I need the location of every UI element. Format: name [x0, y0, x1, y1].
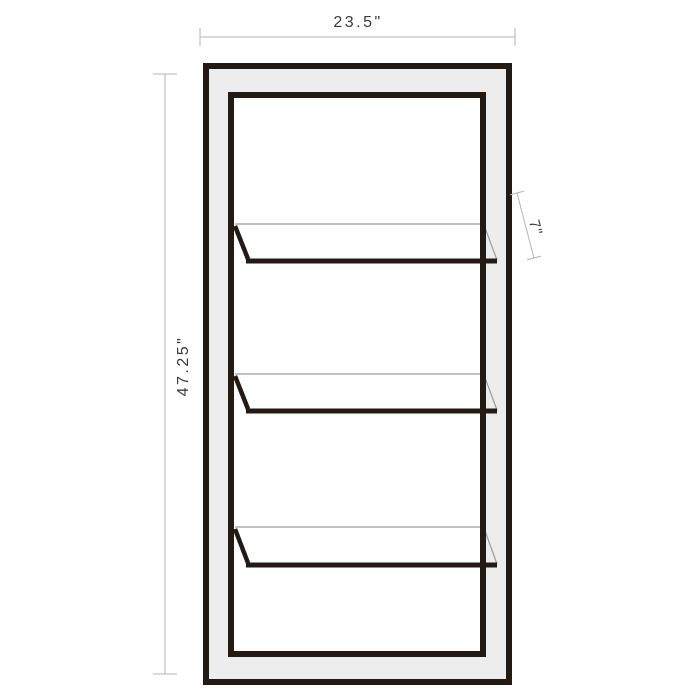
height-dimension-label: 47.25": [175, 336, 192, 397]
width-dimension: 23.5": [200, 14, 515, 46]
bookcase-dimension-diagram: 23.5" 47.25" 7": [0, 0, 700, 700]
diagram-canvas: 23.5" 47.25" 7": [0, 0, 700, 700]
cabinet: [206, 66, 509, 682]
depth-dimension: 7": [510, 191, 546, 260]
height-dimension: 47.25": [153, 74, 192, 674]
width-dimension-label: 23.5": [333, 14, 382, 31]
